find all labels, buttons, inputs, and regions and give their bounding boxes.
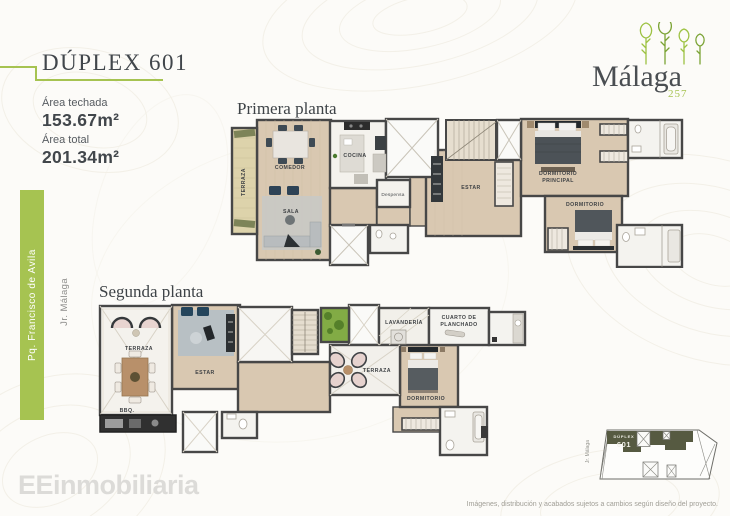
floor2-plan: TERRAZA BBQ. ESTAR LAVANDERÍA CUARTO DE … [93, 300, 585, 462]
estar-sofa-icon [431, 156, 443, 202]
stairs-icon [446, 120, 496, 160]
closet-estar [495, 162, 513, 206]
room-label-terraza2: TERRAZA [363, 368, 391, 374]
room-label-cuarto-planchado-1: CUARTO DE [442, 315, 477, 321]
agency-logo: EEinmobiliaria [18, 470, 199, 501]
living-room-sofa-icon [262, 186, 322, 255]
park-strip-label: Pq. Francisco de Avila [27, 249, 38, 361]
area-roofed-label: Área techada [42, 97, 107, 109]
room-label-cocina: COCINA [343, 153, 366, 159]
page-title: DÚPLEX 601 [42, 50, 188, 76]
floor1-plan: TERRAZA COMEDOR SALA COCINA Despensa EST… [228, 116, 690, 268]
room-label-terraza: TERRAZA [125, 346, 153, 352]
title-bracket-top [0, 66, 37, 68]
dining-table-icon [266, 125, 315, 164]
park-strip: Pq. Francisco de Avila [20, 190, 44, 420]
disclaimer-text: Imágenes, distribución y acabados sujeto… [467, 501, 718, 508]
room-label-estar: ESTAR [195, 370, 214, 376]
brochure-page: DÚPLEX 601 Área techada 153.67m² Área to… [0, 0, 730, 516]
room-label-despensa: Despensa [381, 192, 404, 198]
floor2-hall [238, 362, 330, 412]
street-label-vertical: Jr. Málaga [56, 270, 72, 334]
room-label-dormitorio-principal-1: DORMITORIO [539, 171, 577, 177]
floor1-hall [330, 188, 377, 226]
minimap-unit-label-1: DÚPLEX [613, 434, 634, 439]
location-minimap: DÚPLEX 601 [593, 418, 723, 488]
floor1-hall3 [410, 177, 426, 226]
floor2-bath-door [481, 426, 488, 438]
room-label-comedor: COMEDOR [275, 165, 305, 171]
floor1-title: Primera planta [237, 99, 337, 119]
area-total-value: 201.34m² [42, 147, 119, 168]
bath-bottom-center [370, 225, 408, 253]
bbq-counter-icon [100, 415, 176, 432]
room-label-dormitorio-principal-2: PRINCIPAL [542, 178, 574, 184]
room-label-dormitorio: DORMITORIO [407, 396, 445, 402]
room-label-estar: ESTAR [461, 185, 480, 191]
brand-number: 257 [668, 88, 688, 100]
title-underline [35, 79, 163, 81]
area-roofed-value: 153.67m² [42, 110, 119, 131]
elevator-door [342, 224, 355, 227]
area-total-label: Área total [42, 134, 89, 146]
room-label-sala: SALA [283, 209, 299, 215]
room-label-bbq: BBQ. [120, 408, 135, 414]
room-label-lavanderia: LAVANDERÍA [385, 318, 423, 326]
floor2-title: Segunda planta [99, 282, 203, 302]
floor2-closet [402, 418, 440, 430]
floor2-estar-furniture-icon [178, 307, 235, 356]
room-label-dormitorio: DORMITORIO [566, 202, 604, 208]
minimap-unit-label-2: 601 [617, 440, 631, 449]
closet-bedroom [548, 228, 568, 250]
floor1-hall2 [377, 207, 410, 226]
room-label-terraza: TERRAZA [241, 168, 247, 196]
minimap-street-label: Jr. Málaga [583, 432, 593, 472]
room-label-cuarto-planchado-2: PLANCHADO [440, 322, 477, 328]
